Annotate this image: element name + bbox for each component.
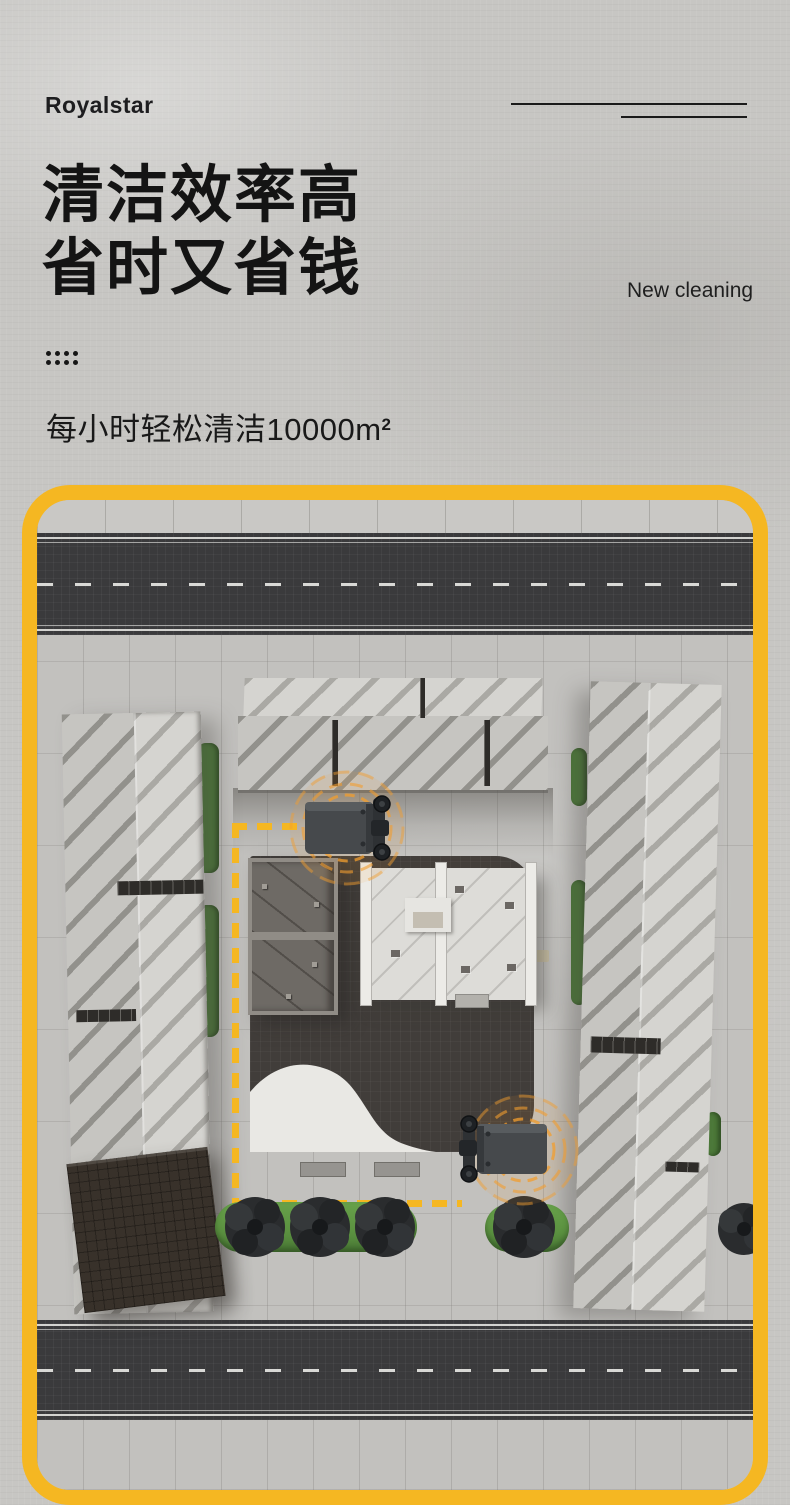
title-line-1: 清洁效率高 xyxy=(42,160,362,233)
cleaning-zone-boundary-left xyxy=(232,823,239,1207)
cleaning-machine-top xyxy=(275,748,435,908)
tagline-text: New cleaning xyxy=(627,279,753,303)
roof-gap xyxy=(484,720,490,786)
cleaning-machine-bottom xyxy=(435,1088,595,1238)
white-curved-path xyxy=(250,1058,436,1152)
hedge-row-left xyxy=(215,1202,417,1252)
dots-grid-icon xyxy=(46,351,78,365)
road-bottom xyxy=(37,1320,753,1420)
illustration-frame xyxy=(22,485,768,1505)
paver-strip xyxy=(374,1162,420,1177)
road-center-dash xyxy=(37,1369,753,1372)
building-brown xyxy=(66,1147,225,1313)
page-title: 清洁效率高 省时又省钱 xyxy=(42,160,362,305)
brand-logo: Royalstar xyxy=(45,92,153,119)
road-top xyxy=(37,533,753,635)
roof-slot xyxy=(76,1009,136,1022)
title-line-2: 省时又省钱 xyxy=(42,233,362,306)
building-right xyxy=(573,681,721,1311)
roof-gap xyxy=(420,678,425,718)
road-center-dash xyxy=(37,583,753,586)
paver-strip xyxy=(300,1162,346,1177)
roof-slot xyxy=(117,880,203,896)
hedge-patch-corner xyxy=(727,1204,753,1250)
hedge-vertical xyxy=(571,748,587,806)
roof-slot xyxy=(665,1162,699,1173)
aerial-scene xyxy=(37,500,753,1490)
subtitle: 每小时轻松清洁10000m2 xyxy=(46,404,392,449)
subtitle-text: 每小时轻松清洁10000m xyxy=(46,412,382,447)
roof-step xyxy=(455,994,489,1008)
decorative-rule-short xyxy=(621,116,747,118)
roof-rail xyxy=(525,862,537,1006)
roof-slot xyxy=(590,1036,660,1054)
roof-rail xyxy=(435,862,447,1006)
subtitle-superscript: 2 xyxy=(382,415,392,434)
decorative-rule-long xyxy=(511,103,747,105)
promo-poster: Royalstar 清洁效率高 省时又省钱 New cleaning 每小时轻松… xyxy=(0,0,790,1505)
sidewalk-strip-top xyxy=(37,500,753,534)
